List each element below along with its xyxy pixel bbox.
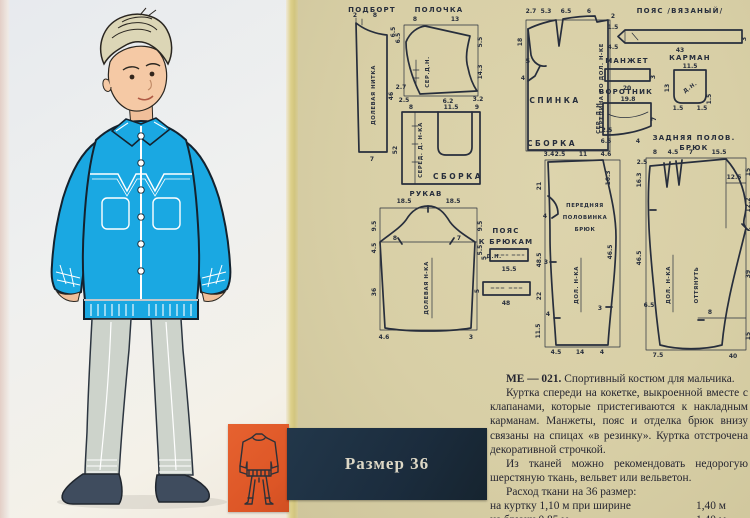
piece-poyas-bryuk: ПОЯС К БРЮКАМ 5 Д.Н. 15.5 5 48 bbox=[474, 227, 533, 307]
measurement-label: 3.2 bbox=[473, 96, 484, 103]
measurement-label: 2.5 bbox=[555, 151, 566, 158]
piece-perednyaya-bryuk: 3.4 2.5 11 4.6 21 4 3 48.5 22 4 11.5 16.… bbox=[535, 151, 620, 356]
piece-title: ВОРОТНИК bbox=[599, 88, 653, 96]
measurement-label: 15 bbox=[745, 168, 750, 176]
piece-title: БРЮК bbox=[679, 144, 708, 152]
measurement-label: 39 bbox=[745, 270, 750, 278]
grain-label: Д.Н. bbox=[682, 81, 698, 95]
measurement-label: 1.5 bbox=[673, 105, 684, 112]
measurement-label: 36 bbox=[371, 288, 378, 296]
piece-zadnyaya-bryuk: ЗАДНЯЯ ПОЛОВ. БРЮК 8 4.5 7 15.5 2.5 16.3… bbox=[636, 134, 750, 360]
measurement-label: 4.5 bbox=[371, 243, 378, 254]
measurement-label: 7 bbox=[457, 235, 461, 242]
measurement-label: 9.5 bbox=[371, 221, 378, 232]
fabric-item: на брюки 0,85 м bbox=[490, 513, 568, 518]
item-heading: МЕ — 021. Спортивный костюм для мальчика… bbox=[490, 372, 748, 386]
pattern-outline bbox=[605, 69, 650, 81]
stretch-label: ОТТЯНУТЬ bbox=[694, 267, 700, 304]
measurement-label: 11.5 bbox=[444, 104, 459, 111]
measurement-label: 11.5 bbox=[683, 63, 698, 70]
measurement-label: 3 bbox=[598, 305, 602, 312]
piece-rukav: РУКАВ 18.5 18.5 9.5 4.5 8 7 9.5 5.5 36 Д… bbox=[371, 190, 484, 341]
measurement-label: 2.5 bbox=[399, 97, 410, 104]
measurement-label: 21 bbox=[536, 182, 543, 190]
measurement-label: 6.5 bbox=[601, 138, 612, 145]
measurement-label: 6.5 bbox=[395, 33, 402, 44]
measurement-label: 5.3 bbox=[541, 8, 552, 15]
measurement-label: 2.7 bbox=[396, 84, 407, 91]
measurement-label: 3 bbox=[741, 37, 748, 41]
pattern-outline bbox=[406, 26, 477, 94]
measurement-label: 8 bbox=[409, 104, 413, 111]
measurement-label: 12.2 bbox=[745, 198, 750, 213]
fabric-value: 1,40 м bbox=[696, 499, 748, 513]
measurement-label: 3.4 bbox=[544, 151, 555, 158]
piece-polochka: ПОЛОЧКА 8 13 6.5 5.5 14.3 2.7 2.5 6.2 3.… bbox=[395, 6, 484, 105]
description-block: МЕ — 021. Спортивный костюм для мальчика… bbox=[490, 372, 748, 518]
measurement-label: 4 bbox=[521, 75, 525, 82]
measurement-label: 2.5 bbox=[637, 159, 648, 166]
grain-label: ДОЛЕВАЯ Н-КА bbox=[424, 261, 430, 315]
measurement-label: 8 bbox=[393, 235, 397, 242]
measurement-label: 8 bbox=[413, 16, 417, 23]
measurement-label: 12.5 bbox=[727, 174, 742, 181]
grain-label: ДОЛ. Н-КА bbox=[666, 266, 672, 304]
measurement-label: 5.5 bbox=[477, 245, 484, 256]
measurement-label: 7 bbox=[370, 156, 374, 163]
measurement-label: 8 bbox=[373, 12, 377, 19]
measurement-label: 3 bbox=[650, 75, 657, 79]
measurement-label: 2.7 bbox=[526, 8, 537, 15]
pattern-outline bbox=[648, 159, 746, 349]
measurement-label: 11 bbox=[579, 151, 587, 158]
size-label-bar: Размер 36 bbox=[287, 428, 487, 500]
fabric-swatch bbox=[228, 424, 289, 512]
measurement-label: 18 bbox=[517, 38, 524, 46]
measurement-label: 40 bbox=[729, 353, 737, 360]
measurement-label: 4.6 bbox=[379, 334, 390, 341]
piece-podbort: ПОДБОРТ 2 8 6.5 46 7 ДОЛЕВАЯ НИТКА bbox=[348, 6, 397, 163]
measurement-label: 2 bbox=[611, 13, 615, 20]
grain-label: ДОЛЕВАЯ НИТКА bbox=[371, 65, 377, 125]
measurement-label: 46 bbox=[388, 92, 395, 100]
boy-jacket bbox=[52, 118, 231, 319]
measurement-label: 4 bbox=[636, 138, 640, 145]
boy-trousers bbox=[85, 319, 193, 475]
item-title: Спортивный костюм для мальчика. bbox=[564, 373, 734, 385]
fabric-heading: Расход ткани на 36 размер: bbox=[490, 485, 748, 499]
grain-label: ДОЛ. Н-КА bbox=[574, 266, 580, 304]
magazine-spread: ПОДБОРТ 2 8 6.5 46 7 ДОЛЕВАЯ НИТКА ПОЛОЧ… bbox=[0, 0, 750, 518]
piece-poyas: ПОЯС /ВЯЗАНЫЙ/ 1.5 4.5 43 3 bbox=[608, 6, 748, 54]
measurement-label: 4.5 bbox=[551, 349, 562, 356]
piece-title: ЗАДНЯЯ ПОЛОВ. bbox=[653, 134, 736, 142]
measurement-label: 9.5 bbox=[477, 221, 484, 232]
measurement-label: 14.3 bbox=[477, 65, 484, 80]
measurement-label: 1.5 bbox=[608, 24, 619, 31]
piece-title: МАНЖЕТ bbox=[605, 57, 649, 65]
measurement-label: 7.5 bbox=[653, 352, 664, 359]
measurement-label: 7 bbox=[651, 117, 658, 121]
measurement-label: 1.5 bbox=[706, 94, 713, 105]
gather-label: СБОРКА bbox=[527, 139, 577, 148]
measurement-label: 46.5 bbox=[607, 245, 614, 260]
measurement-label: 4.6 bbox=[601, 151, 612, 158]
measurement-label: 14 bbox=[576, 349, 584, 356]
fabric-value: 1,40 м bbox=[696, 513, 748, 518]
size-label: Размер 36 bbox=[345, 454, 429, 474]
measurement-label: 13 bbox=[664, 84, 671, 92]
gather-label: СБОРКА bbox=[433, 172, 483, 181]
piece-title: СПИНКА bbox=[529, 96, 580, 105]
pattern-outline bbox=[618, 30, 742, 43]
fabric-row: на куртку 1,10 м при ширине 1,40 м bbox=[490, 499, 748, 513]
measurement-label: 16.3 bbox=[636, 173, 643, 188]
measurement-label: 6 bbox=[587, 8, 591, 15]
measurement-label: 48 bbox=[502, 300, 510, 307]
measurement-label: 4 bbox=[546, 311, 550, 318]
measurement-label: 15.5 bbox=[712, 149, 727, 156]
measurement-label: 15 bbox=[745, 332, 750, 340]
piece-title: КАРМАН bbox=[669, 54, 711, 62]
piece-title: РУКАВ bbox=[409, 190, 442, 198]
fabric-ditto: » bbox=[568, 513, 696, 518]
measurement-label: 3 bbox=[544, 259, 548, 266]
measurement-label: 4 bbox=[600, 349, 604, 356]
grain-label: СЕР.Д.Н. bbox=[425, 56, 431, 87]
piece-karman: КАРМАН 11.5 13 Д.Н. 1.5 1.5 1.5 bbox=[664, 54, 713, 112]
measurement-label: 5 bbox=[526, 58, 530, 65]
fabric-paragraph: Из тканей можно рекомендовать недорогую … bbox=[490, 457, 748, 485]
measurement-label: 6.5 bbox=[644, 302, 655, 309]
measurement-label: 8 bbox=[653, 149, 657, 156]
measurement-label: 7 bbox=[689, 149, 693, 156]
piece-title: ПОЯС bbox=[492, 227, 519, 235]
measurement-label: 4 bbox=[543, 213, 547, 220]
measurement-label: 13 bbox=[451, 16, 459, 23]
measurement-label: 3 bbox=[469, 334, 473, 341]
measurement-label: 9 bbox=[475, 104, 479, 111]
piece-manzhet: МАНЖЕТ 20 3 bbox=[605, 57, 657, 92]
pattern-outline bbox=[483, 282, 530, 295]
measurement-label: 48.5 bbox=[536, 253, 543, 268]
piece-title: ПОЯС /ВЯЗАНЫЙ/ bbox=[637, 6, 724, 15]
measurement-label: 2 bbox=[353, 12, 357, 19]
measurement-label: 43 bbox=[676, 47, 684, 54]
piece-vorotnik: ВОРОТНИК 19.8 СЕР. Д.Н. 2.5 6.5 4 7 bbox=[596, 88, 658, 145]
measurement-label: 18.5 bbox=[397, 198, 412, 205]
measurement-label: 1.5 bbox=[697, 105, 708, 112]
suit-icon bbox=[228, 424, 289, 512]
measurement-label: 4.5 bbox=[668, 149, 679, 156]
measurement-label: 8 bbox=[708, 309, 712, 316]
measurement-label: 5.5 bbox=[477, 37, 484, 48]
item-code: МЕ — 021. bbox=[506, 373, 561, 385]
measurement-label: 15.5 bbox=[502, 266, 517, 273]
pattern-diagrams: ПОДБОРТ 2 8 6.5 46 7 ДОЛЕВАЯ НИТКА ПОЛОЧ… bbox=[298, 0, 750, 372]
grain-label: Д.Н. bbox=[486, 254, 502, 260]
measurement-label: 2.5 bbox=[602, 127, 613, 134]
piece-title: БРЮК bbox=[575, 227, 596, 233]
measurement-label: 11.5 bbox=[535, 324, 542, 339]
measurement-label: 4.5 bbox=[608, 44, 619, 51]
measurement-label: 19.8 bbox=[621, 96, 636, 103]
measurement-label: 52 bbox=[392, 146, 399, 154]
piece-title: ПОЛОВИНКА bbox=[563, 215, 608, 221]
measurement-label: 22 bbox=[536, 292, 543, 300]
fabric-row: на брюки 0,85 м » 1,40 м bbox=[490, 513, 748, 518]
piece-title: ПЕРЕДНЯЯ bbox=[566, 203, 604, 209]
piece-title: ПОЛОЧКА bbox=[415, 6, 464, 14]
measurement-label: 6.5 bbox=[561, 8, 572, 15]
piece-front-lower: 8 11.5 9 52 СЕРЕД. Д. Н-КА СБОРКА bbox=[392, 104, 483, 184]
measurement-label: 46.5 bbox=[636, 251, 643, 266]
measurement-label: 18.5 bbox=[446, 198, 461, 205]
piece-title: К БРЮКАМ bbox=[479, 238, 534, 246]
fabric-item: на куртку 1,10 м при ширине bbox=[490, 499, 631, 513]
grain-label: СЕРЕД. Д. Н-КА bbox=[418, 122, 424, 178]
measurement-label: 16.3 bbox=[605, 171, 612, 186]
description-paragraph: Куртка спереди на кокетке, выкроенной вм… bbox=[490, 386, 748, 457]
boy-head bbox=[101, 8, 172, 127]
measurement-label: 5 bbox=[474, 289, 481, 293]
